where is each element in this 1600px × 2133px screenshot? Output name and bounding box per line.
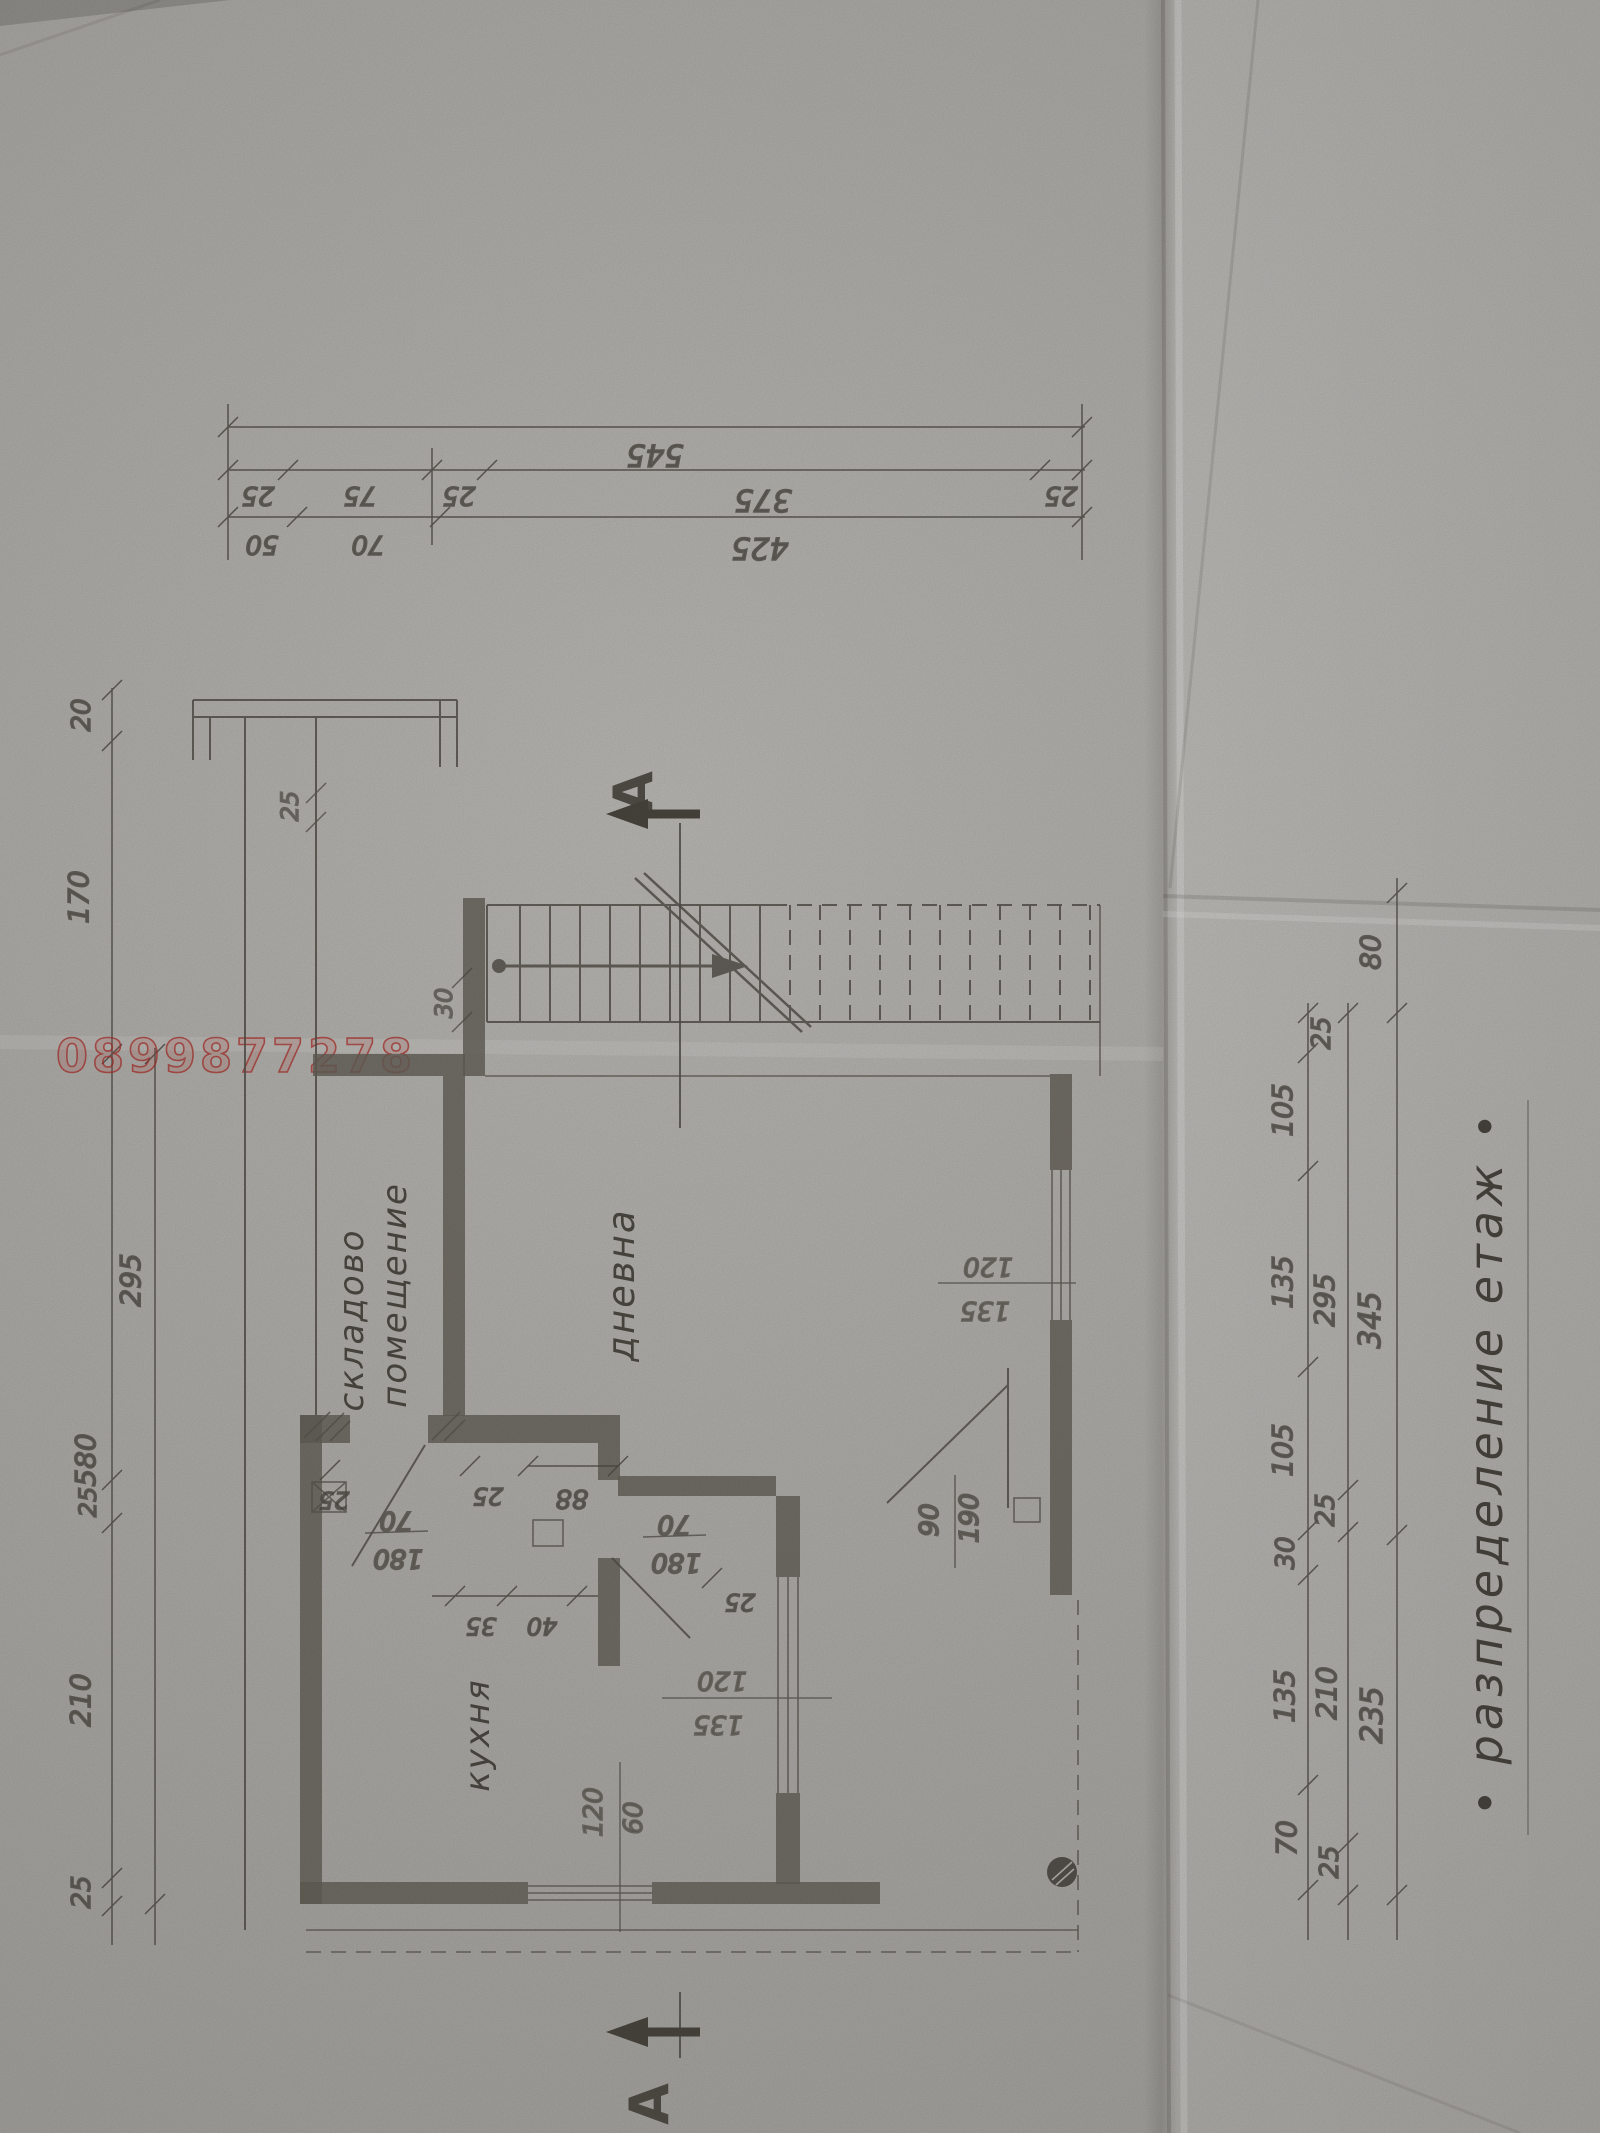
floor-plan-drawing: 545 25 75 25 375 25 50 70 425 20 170 295… [0, 0, 1600, 2133]
paper-grain [0, 0, 1600, 2133]
scanned-floor-plan-photo: 545 25 75 25 375 25 50 70 425 20 170 295… [0, 0, 1600, 2133]
